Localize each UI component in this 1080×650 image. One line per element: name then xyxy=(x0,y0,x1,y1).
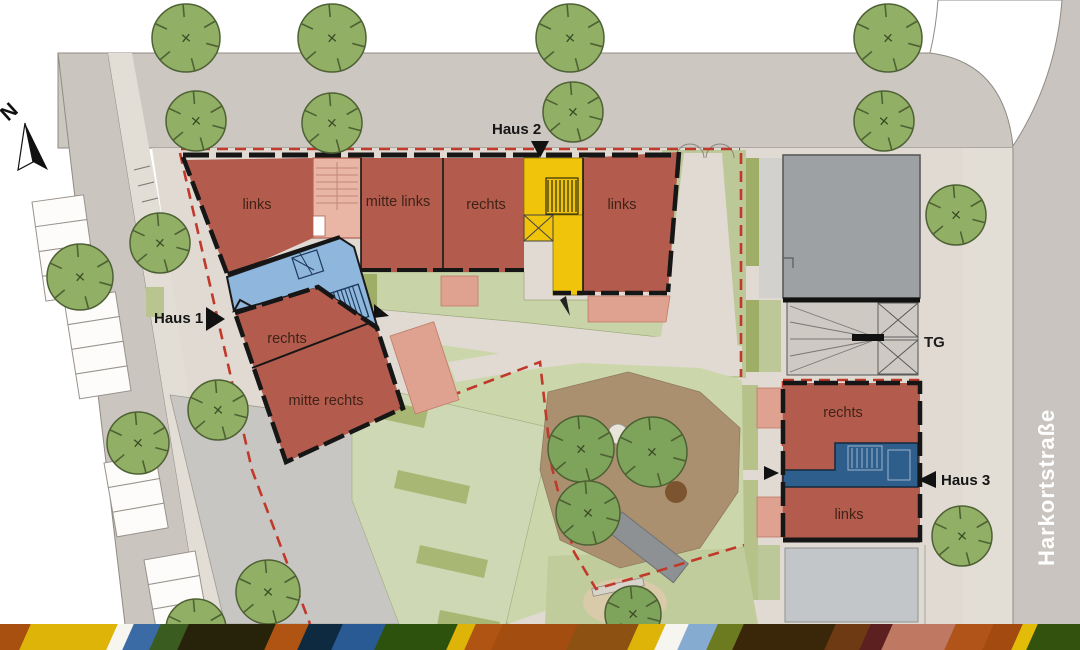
site-plan: N TG Harkortstraße linksmitte linksrecht… xyxy=(0,0,1080,650)
site-plan-stage: N TG Harkortstraße linksmitte linksrecht… xyxy=(0,0,1080,650)
street-name-label: Harkortstraße xyxy=(1034,409,1059,566)
tree-icon xyxy=(107,412,169,474)
tree-icon xyxy=(188,380,248,440)
tree-icon xyxy=(854,4,922,72)
tree-icon xyxy=(617,417,687,487)
lawn xyxy=(758,545,780,600)
unit-label: rechts xyxy=(823,405,863,421)
garage-label: TG xyxy=(924,334,945,351)
tree-icon xyxy=(166,91,226,151)
tree-icon xyxy=(854,91,914,151)
tree-icon xyxy=(548,416,614,482)
house-label: Haus 3 xyxy=(941,472,990,489)
existing-building xyxy=(783,155,920,298)
tree-icon xyxy=(152,4,220,72)
lawn xyxy=(759,300,781,372)
tree-icon xyxy=(236,560,300,624)
unit-label: rechts xyxy=(466,197,506,213)
tree-icon xyxy=(926,185,986,245)
tree-icon xyxy=(543,82,603,142)
unit-label: rechts xyxy=(267,331,307,347)
house-label: Haus 1 xyxy=(154,310,203,327)
tree-icon xyxy=(556,481,620,545)
garage-ramp xyxy=(783,300,920,375)
unit-label: links xyxy=(607,197,636,213)
south-gray-block xyxy=(785,548,918,622)
tree-icon xyxy=(302,93,362,153)
brand-color-stripe xyxy=(0,624,1080,650)
tree-icon xyxy=(298,4,366,72)
tree-icon xyxy=(47,244,113,310)
stair-core-salmon xyxy=(313,158,361,238)
tree-icon xyxy=(932,506,992,566)
unit-label: links xyxy=(834,507,863,523)
unit-label: links xyxy=(242,197,271,213)
unit-links-ne xyxy=(583,152,679,292)
gray-yard xyxy=(759,158,783,298)
unit-rechts-north xyxy=(443,158,524,272)
unit-mitte-links xyxy=(361,158,443,272)
play-mound xyxy=(665,481,687,503)
house-label: Haus 2 xyxy=(492,121,541,138)
tree-icon xyxy=(130,213,190,273)
tree-icon xyxy=(536,4,604,72)
unit-label: mitte rechts xyxy=(289,393,364,409)
hedge xyxy=(746,300,759,372)
hedge xyxy=(746,158,759,266)
unit-label: mitte links xyxy=(366,194,430,210)
